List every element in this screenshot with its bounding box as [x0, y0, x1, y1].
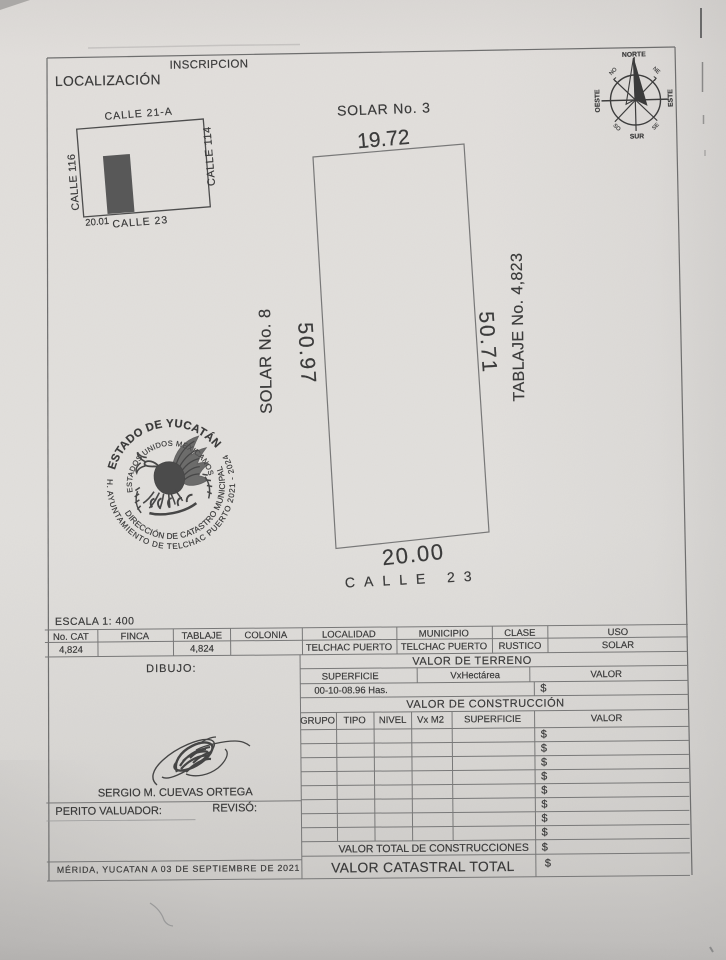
- svg-text:USO: USO: [608, 627, 629, 638]
- svg-text:SOLAR: SOLAR: [602, 640, 634, 651]
- svg-text:$: $: [541, 729, 547, 741]
- svg-text:20.01: 20.01: [85, 216, 110, 229]
- svg-text:VALOR CATASTRAL TOTAL: VALOR CATASTRAL TOTAL: [331, 859, 515, 876]
- svg-text:4,824: 4,824: [190, 644, 214, 655]
- svg-text:CLASE: CLASE: [504, 628, 535, 639]
- svg-text:PERITO VALUADOR:: PERITO VALUADOR:: [55, 805, 162, 818]
- svg-text:GRUPO: GRUPO: [300, 715, 335, 726]
- svg-text:SUR: SUR: [630, 133, 645, 140]
- svg-text:50.71: 50.71: [474, 311, 501, 375]
- svg-text:TELCHAC PUERTO: TELCHAC PUERTO: [306, 642, 392, 654]
- svg-text:4,824: 4,824: [59, 645, 83, 656]
- svg-text:SOLAR No. 8: SOLAR No. 8: [256, 308, 276, 414]
- svg-text:50.97: 50.97: [293, 322, 320, 386]
- svg-text:19.72: 19.72: [356, 126, 410, 153]
- svg-text:VALOR DE CONSTRUCCIÓN: VALOR DE CONSTRUCCIÓN: [406, 696, 564, 710]
- svg-text:$: $: [541, 771, 547, 783]
- svg-text:NORTE: NORTE: [622, 51, 646, 59]
- svg-text:$: $: [542, 827, 548, 839]
- svg-text:INSCRIPCION: INSCRIPCION: [169, 58, 248, 71]
- svg-text:REVISÓ:: REVISÓ:: [212, 801, 257, 814]
- svg-text:VALOR TOTAL DE CONSTRUCCIONES: VALOR TOTAL DE CONSTRUCCIONES: [339, 842, 529, 856]
- svg-text:No. CAT: No. CAT: [53, 632, 89, 643]
- svg-text:ESTE: ESTE: [667, 89, 674, 107]
- svg-text:$: $: [541, 743, 547, 755]
- svg-text:SOLAR No. 3: SOLAR No. 3: [337, 99, 431, 118]
- svg-text:$: $: [541, 799, 547, 811]
- svg-text:$: $: [542, 842, 548, 854]
- svg-text:$: $: [541, 785, 547, 797]
- svg-text:SERGIO M. CUEVAS ORTEGA: SERGIO M. CUEVAS ORTEGA: [98, 786, 254, 799]
- svg-text:$: $: [540, 683, 546, 695]
- svg-text:00-10-08.96 Has.: 00-10-08.96 Has.: [314, 685, 388, 697]
- svg-text:LOCALIDAD: LOCALIDAD: [322, 629, 376, 640]
- svg-text:LOCALIZACIÓN: LOCALIZACIÓN: [55, 71, 161, 89]
- svg-text:SUPERFICIE: SUPERFICIE: [322, 671, 379, 682]
- svg-text:FINCA: FINCA: [121, 631, 150, 642]
- svg-text:NIVEL: NIVEL: [379, 715, 407, 726]
- svg-text:VALOR: VALOR: [591, 713, 623, 724]
- svg-text:RUSTICO: RUSTICO: [499, 641, 542, 652]
- svg-text:TIPO: TIPO: [343, 715, 365, 726]
- svg-text:$: $: [545, 858, 551, 870]
- svg-text:VALOR: VALOR: [590, 669, 622, 680]
- svg-text:Vx M2: Vx M2: [417, 715, 444, 726]
- svg-text:COLONIA: COLONIA: [244, 630, 288, 641]
- svg-text:TELCHAC PUERTO: TELCHAC PUERTO: [401, 641, 487, 653]
- svg-text:TABLAJE: TABLAJE: [182, 630, 223, 641]
- svg-text:MUNICIPIO: MUNICIPIO: [419, 628, 469, 639]
- svg-text:SUPERFICIE: SUPERFICIE: [464, 714, 521, 725]
- svg-text:$: $: [541, 813, 547, 825]
- svg-text:VxHectárea: VxHectárea: [450, 670, 500, 681]
- svg-text:MÉRIDA, YUCATAN A 03 DE SE: MÉRIDA, YUCATAN A 03 DE SEPTIEMBRE DE 20…: [57, 863, 300, 875]
- svg-text:VALOR DE TERRENO: VALOR DE TERRENO: [412, 655, 532, 668]
- svg-text:DIBUJO:: DIBUJO:: [146, 663, 197, 675]
- svg-text:ESCALA 1: 400: ESCALA 1: 400: [55, 615, 135, 628]
- svg-text:OESTE: OESTE: [594, 89, 602, 113]
- svg-text:TABLAJE No. 4,823: TABLAJE No. 4,823: [509, 253, 529, 402]
- svg-text:$: $: [541, 757, 547, 769]
